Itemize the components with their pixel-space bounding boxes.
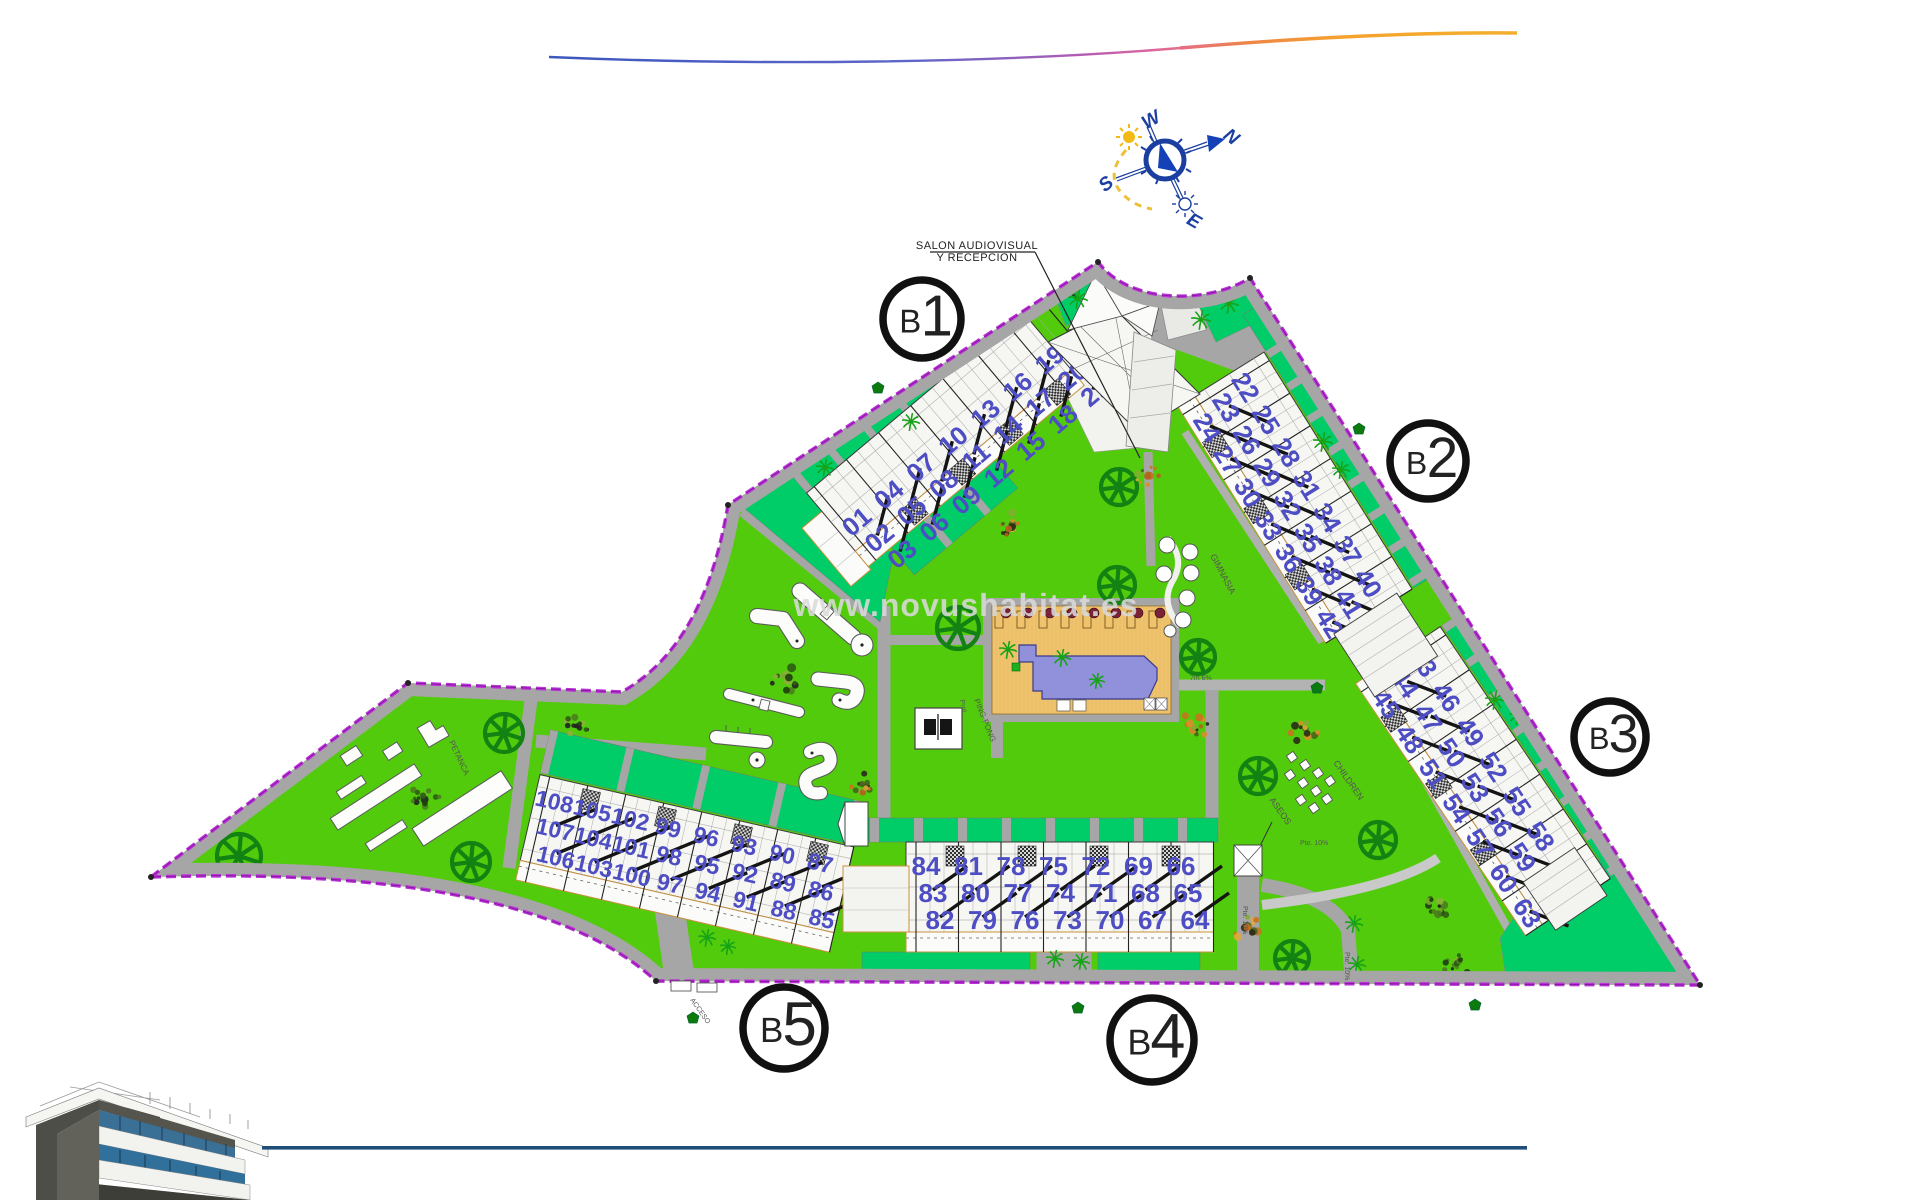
- svg-text:64: 64: [1181, 905, 1210, 935]
- svg-text:4: 4: [1150, 1002, 1185, 1072]
- svg-text:70: 70: [1096, 905, 1125, 935]
- svg-text:71: 71: [1089, 878, 1118, 908]
- svg-text:www.novushabitat.es: www.novushabitat.es: [793, 587, 1139, 623]
- svg-text:7m 6%: 7m 6%: [1190, 675, 1212, 682]
- svg-text:68: 68: [1131, 878, 1160, 908]
- svg-text:79: 79: [968, 905, 997, 935]
- svg-text:80: 80: [961, 878, 990, 908]
- svg-text:65: 65: [1174, 878, 1203, 908]
- svg-text:SALON AUDIOVISUAL: SALON AUDIOVISUAL: [916, 240, 1038, 252]
- svg-text:1: 1: [921, 283, 953, 348]
- svg-text:5: 5: [782, 990, 816, 1059]
- svg-text:81: 81: [954, 851, 983, 881]
- svg-text:Pte. 10%: Pte. 10%: [1343, 952, 1350, 980]
- svg-text:B: B: [1406, 445, 1427, 481]
- svg-text:67: 67: [1138, 905, 1167, 935]
- svg-text:82: 82: [926, 905, 955, 935]
- svg-text:Pte. 10%: Pte. 10%: [1300, 840, 1328, 847]
- svg-text:72: 72: [1082, 851, 1111, 881]
- svg-text:B: B: [760, 1011, 783, 1050]
- svg-text:2: 2: [1427, 426, 1459, 490]
- svg-text:84: 84: [912, 851, 941, 881]
- svg-text:66: 66: [1167, 851, 1196, 881]
- svg-text:74: 74: [1046, 878, 1075, 908]
- svg-text:3: 3: [1609, 704, 1639, 764]
- svg-text:Pte. 10%: Pte. 10%: [1241, 906, 1248, 934]
- svg-text:77: 77: [1004, 878, 1033, 908]
- svg-text:69: 69: [1124, 851, 1153, 881]
- svg-text:76: 76: [1011, 905, 1040, 935]
- svg-text:78: 78: [997, 851, 1026, 881]
- svg-text:B: B: [899, 302, 921, 339]
- svg-text:Y RECEPCION: Y RECEPCION: [936, 252, 1017, 264]
- svg-text:B: B: [1127, 1021, 1151, 1062]
- svg-text:B: B: [1589, 721, 1610, 756]
- svg-text:73: 73: [1053, 905, 1082, 935]
- svg-text:75: 75: [1039, 851, 1068, 881]
- svg-text:83: 83: [919, 878, 948, 908]
